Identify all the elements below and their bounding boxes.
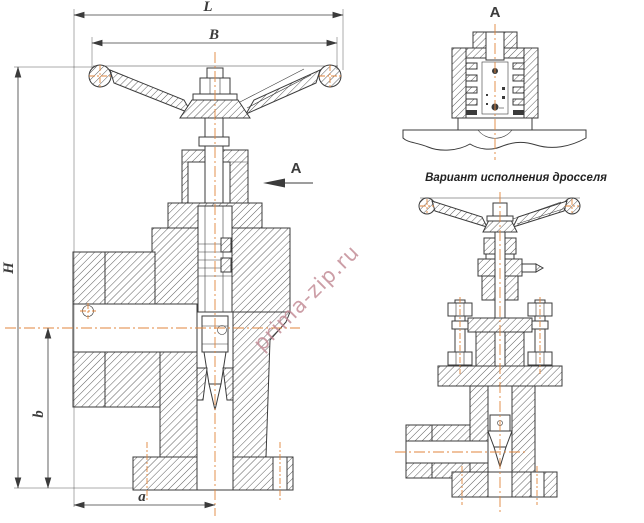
dimension-B-label: B	[208, 27, 219, 43]
handwheel-variant	[419, 198, 580, 232]
section-view-title: A	[490, 4, 501, 21]
main-valve-view: A L B H b a	[1, 0, 343, 516]
dimension-a-label: a	[138, 489, 146, 505]
stem-gland-variant	[478, 232, 543, 332]
throttle-variant-view: Вариант исполнения дросселя	[395, 172, 607, 515]
valve-technical-drawing: A L B H b a A	[0, 0, 644, 523]
drawing-canvas: A L B H b a A	[0, 0, 644, 523]
bonnet-main	[152, 203, 290, 312]
body-variant	[406, 386, 557, 497]
dimension-H-label: H	[1, 261, 17, 275]
variant-caption: Вариант исполнения дросселя	[425, 172, 607, 184]
yoke-bracket-break	[403, 130, 586, 150]
section-arrow-label: A	[291, 160, 302, 177]
dimension-b-label: b	[31, 410, 47, 418]
section-view-a: A	[403, 4, 586, 160]
section-cut-arrow: A	[263, 160, 313, 188]
dimension-L-label: L	[202, 0, 212, 15]
